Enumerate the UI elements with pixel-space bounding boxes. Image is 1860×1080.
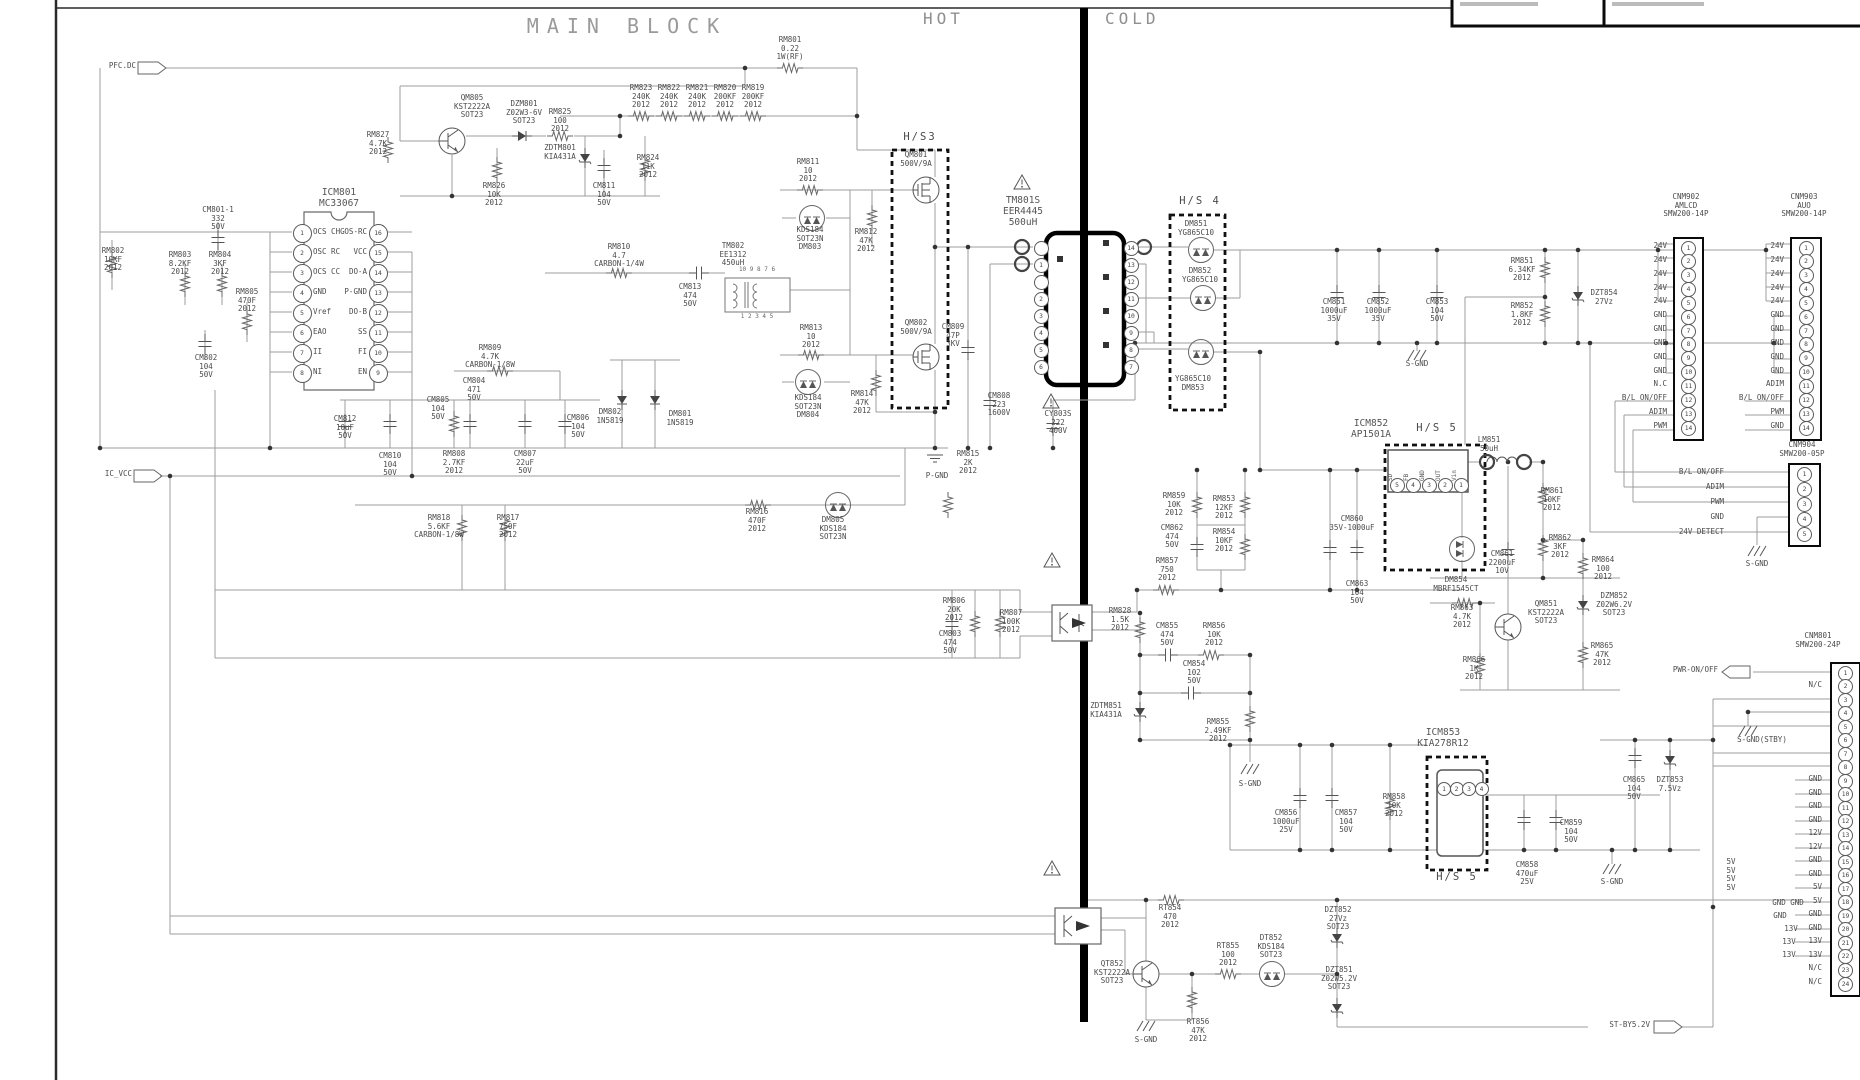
ground-label: S-GND [1239, 780, 1262, 789]
component-label: DZT854 27Vz [1590, 289, 1617, 306]
cnm902-pin-label: N.C [1653, 380, 1667, 389]
cnm801-pin-label: 13V [1808, 937, 1822, 946]
icm801-pin-fn: Vref [313, 308, 331, 317]
icm801-pin-fn: DO-A [349, 268, 367, 277]
component-label: RM810 4.7 CARBON-1/4W [594, 243, 644, 269]
component-label: RM856 10K 2012 [1203, 622, 1226, 648]
cnm903-pin-label: GND [1770, 339, 1784, 348]
icm801-pin-fn: DO-B [349, 308, 367, 317]
heatsink-hs3-box [892, 150, 948, 408]
cnm903-pin-14: 14 [1799, 421, 1814, 436]
cnm904-pin-4: 4 [1797, 512, 1812, 527]
component-label: RM807 100K 2012 [1000, 609, 1023, 635]
icm801-pin-3: 3 [293, 264, 312, 283]
component-label: CM805 104 50V [427, 396, 450, 422]
icm801-pin-fn: OCS CC [313, 268, 340, 277]
component-label: RM816 470F 2012 [746, 508, 769, 534]
cnm902-pin-label: GND [1653, 353, 1667, 362]
cnm801-pin-label: GND [1808, 789, 1822, 798]
cnm904-pin-3: 3 [1797, 497, 1812, 512]
component-label: CM856 1000uF 25V [1272, 809, 1299, 835]
component-label: RT854 470 2012 [1159, 904, 1182, 930]
component-label: RM820 200KF 2012 [714, 84, 737, 110]
component-label: RM808 2.7KF 2012 [443, 450, 466, 476]
cnm903-pin-5: 5 [1799, 296, 1814, 311]
component-label: CM812 10uF 50V [334, 415, 357, 441]
component-label: RM813 10 2012 [800, 324, 823, 350]
cnm903-pin-label: GND [1770, 325, 1784, 334]
cnm903-pin-label: 24V [1770, 242, 1784, 251]
component-label: ZDTM851 KIA431A [1090, 702, 1122, 719]
tm801s-primary-pin [1034, 275, 1049, 290]
component-label: DM854 MBRF1545CT [1433, 576, 1478, 593]
cnm903-pin-10: 10 [1799, 365, 1814, 380]
component-label: RM827 4.7K 2012 [367, 131, 390, 157]
icm801-pin-12: 12 [369, 304, 388, 323]
icm801-pin-16: 16 [369, 224, 388, 243]
cnm801-pin-label: 5V [1813, 883, 1822, 892]
cnm801-pin-label: GND [1808, 856, 1822, 865]
component-label: RM804 3KF 2012 [209, 251, 232, 277]
cnm902-pin-label: B/L ON/OFF [1622, 394, 1667, 403]
cnm903-pin-1: 1 [1799, 241, 1814, 256]
cnm801-pin-label: GND [1808, 870, 1822, 879]
cnm902-pin-7: 7 [1681, 324, 1696, 339]
component-label: QM805 KST2222A SOT23 [454, 94, 490, 120]
icm801-pin-fn: SS [358, 328, 367, 337]
component-label: CM804 471 50V [463, 377, 486, 403]
heatsink-label: H/S 5 [1436, 872, 1478, 884]
cnm801-pin-label: 13V [1808, 951, 1822, 960]
component-label: RT856 47K 2012 [1187, 1018, 1210, 1044]
cnm903-pin-label: GND [1770, 367, 1784, 376]
icm801-pin-13: 13 [369, 284, 388, 303]
component-label: RM818 5.6KF CARBON-1/8W [414, 514, 464, 540]
cnm801-pin-label: GND [1808, 802, 1822, 811]
tm802-top-pins: 10 9 8 7 6 [739, 267, 775, 274]
cnm903-pin-13: 13 [1799, 407, 1814, 422]
cnm902-pin-label: 24V [1653, 242, 1667, 251]
component-label: RM801 0.22 1W(RF) [776, 36, 803, 62]
icm801-body [304, 212, 374, 390]
component-label: RM802 10KF 2012 [102, 247, 125, 273]
cnm904-pin-2: 2 [1797, 482, 1812, 497]
icm853-title: ICM853 KIA278R12 [1417, 728, 1468, 750]
component-label: CM852 1000uF 35V [1364, 298, 1391, 324]
component-label: DT852 KDS184 SOT23 [1257, 934, 1284, 960]
cnm902-pin-label: 24V [1653, 256, 1667, 265]
heatsink-label: H/S3 [903, 132, 936, 144]
cnm902-pin-label: GND [1653, 339, 1667, 348]
cnm903-pin-label: GND [1770, 422, 1784, 431]
icm801-pin-10: 10 [369, 344, 388, 363]
tm801s-secondary-pin: 12 [1124, 275, 1139, 290]
component-label: RM862 3KF 2012 [1549, 534, 1572, 560]
component-label: RM866 1K 2012 [1463, 656, 1486, 682]
cnm904-pin-label: 24V DETECT [1679, 528, 1724, 537]
pwr-on-off-label: PWR-ON/OFF [1673, 666, 1718, 675]
cnm904-pin-1: 1 [1797, 467, 1812, 482]
icm801-pin-2: 2 [293, 244, 312, 263]
component-label: QT852 KST2222A SOT23 [1094, 960, 1130, 986]
component-label: CM857 104 50V [1335, 809, 1358, 835]
cnm801-pin-24: 24 [1838, 977, 1853, 992]
component-label: DM852 YG865C10 [1182, 267, 1218, 284]
tm801s-secondary-pin: 7 [1124, 360, 1139, 375]
component-label: RM821 240K 2012 [686, 84, 709, 110]
component-label: CM855 474 50V [1156, 622, 1179, 648]
icm801-pin-fn: OCS CHG [313, 228, 345, 237]
component-label: QM802 500V/9A [900, 319, 932, 336]
cnm903-pin-label: B/L ON/OFF [1739, 394, 1784, 403]
component-label: CM803 474 50V [939, 630, 962, 656]
component-label: ZDTM801 KIA431A [544, 144, 576, 161]
schematic-page: MAIN BLOCK HOT COLD RM801 0.22 1W(RF)RM8… [0, 0, 1860, 1080]
icm801-title: ICM801 MC33067 [319, 188, 359, 210]
component-label: CM802 104 50V [195, 354, 218, 380]
component-label: RM853 12KF 2012 [1213, 495, 1236, 521]
cnm903-pin-9: 9 [1799, 351, 1814, 366]
icm801-pin-fn: FI [358, 348, 367, 357]
component-label: CM860 35V-1000uF [1329, 515, 1374, 532]
component-label: RM861 10KF 2012 [1541, 487, 1564, 513]
component-label: RM855 2.49KF 2012 [1204, 718, 1231, 744]
component-label: DM851 YG865C10 [1178, 220, 1214, 237]
icm801-pin-fn: EN [358, 368, 367, 377]
connector-title: CNM902 AMLCD SMW200-14P [1663, 193, 1708, 219]
icm801-pin-fn: OSC RC [313, 248, 340, 257]
cnm801-pin-label: 12V [1808, 843, 1822, 852]
icm852-pin-name: SD [1387, 474, 1394, 481]
component-label: KDS184 SOT23N DM804 [794, 394, 821, 420]
cnm903-pin-12: 12 [1799, 393, 1814, 408]
component-label: CM807 22uF 50V [514, 450, 537, 476]
cnm902-pin-label: PWM [1653, 422, 1667, 431]
component-label: DM805 KDS184 SOT23N [819, 516, 846, 542]
tm801s-primary-pin: 3 [1034, 309, 1049, 324]
tm801s-primary-pin: 5 [1034, 343, 1049, 358]
cnm902-pin-13: 13 [1681, 407, 1696, 422]
st-by-5-2v-label: ST-BY5.2V [1609, 1021, 1650, 1030]
component-label: CM806 104 50V [567, 414, 590, 440]
icm801-pin-fn: NI [313, 368, 322, 377]
component-label: RM852 1.8KF 2012 [1511, 302, 1534, 328]
icm801-pin-fn: P-GND [344, 288, 367, 297]
component-label: RM811 10 2012 [797, 158, 820, 184]
cnm902-pin-12: 12 [1681, 393, 1696, 408]
component-label: RM803 8.2KF 2012 [169, 251, 192, 277]
cnm904-pin-label: GND [1710, 513, 1724, 522]
component-label: RM864 100 2012 [1592, 556, 1615, 582]
cnm902-pin-label: ADIM [1649, 408, 1667, 417]
icm801-pin-4: 4 [293, 284, 312, 303]
component-label: RM815 2K 2012 [957, 450, 980, 476]
pfc-dc-label: PFC.DC [109, 62, 136, 71]
cnm902-pin-4: 4 [1681, 282, 1696, 297]
component-label: CM810 104 50V [379, 452, 402, 478]
tm801s-primary-pin: 2 [1034, 292, 1049, 307]
icm801-pin-7: 7 [293, 344, 312, 363]
cnm902-pin-14: 14 [1681, 421, 1696, 436]
cnm902-pin-5: 5 [1681, 296, 1696, 311]
tm801s-secondary-pin: 14 [1124, 241, 1139, 256]
frame [56, 0, 1860, 1080]
icm852-title: ICM852 AP1501A [1351, 419, 1391, 441]
cnm801-pin-4: 4 [1838, 706, 1853, 721]
icm801-pin-11: 11 [369, 324, 388, 343]
cnm903-pin-label: GND [1770, 311, 1784, 320]
ground-label: S-GND [1746, 560, 1769, 569]
cnm904-pin-label: B/L ON/OFF [1679, 468, 1724, 477]
cnm801-pin-label: N/C [1808, 978, 1822, 987]
tm801s-secondary-pin: 11 [1124, 292, 1139, 307]
component-label: 13V [1782, 951, 1796, 960]
component-label: 5V 5V 5V 5V [1726, 858, 1735, 892]
ground-label: S-GND(STBY) [1737, 736, 1787, 745]
ground-label: S-GND [1601, 878, 1624, 887]
connector-title: CNM903 AUO SMW200-14P [1781, 193, 1826, 219]
tm801s-secondary-pin: 8 [1124, 343, 1139, 358]
cnm801-pin-6: 6 [1838, 733, 1853, 748]
main-block-title: MAIN BLOCK [527, 14, 727, 38]
icm852-pin-name: GND [1419, 470, 1426, 481]
cnm801-pin-label: 12V [1808, 829, 1822, 838]
component-label: DZM852 Z02W6.2V SOT23 [1596, 592, 1632, 618]
cnm902-pin-label: GND [1653, 311, 1667, 320]
component-label: CM808 223 1600V [988, 392, 1011, 418]
tm801s-primary-pin: 4 [1034, 326, 1049, 341]
isolation-barrier [1080, 8, 1088, 1022]
component-label: RM826 10K 2012 [483, 182, 506, 208]
component-label: RM854 10KF 2012 [1213, 528, 1236, 554]
cnm801-pin-label: GND [1808, 816, 1822, 825]
cnm904-pin-label: ADIM [1706, 483, 1724, 492]
hot-label: HOT [923, 9, 964, 28]
component-label: DZM801 Z02W3-6V SOT23 [506, 100, 542, 126]
tm801s-secondary-pin: 9 [1124, 326, 1139, 341]
cnm902-pin-label: 24V [1653, 270, 1667, 279]
component-label: RM851 6.34KF 2012 [1508, 257, 1535, 283]
icm853-pin-4: 4 [1475, 782, 1489, 796]
cnm801-pin-label: GND [1808, 910, 1822, 919]
component-label: CM813 474 50V [679, 283, 702, 309]
component-label: CM863 104 50V [1346, 580, 1369, 606]
component-label: RM824 11K 2012 [637, 154, 660, 180]
cnm903-pin-label: 24V [1770, 256, 1784, 265]
cnm903-pin-3: 3 [1799, 268, 1814, 283]
cnm801-pin-label: 5V [1813, 897, 1822, 906]
icm801-pin-fn: OS-RC [344, 228, 367, 237]
icm801-pin-14: 14 [369, 264, 388, 283]
component-label: RM812 47K 2012 [855, 228, 878, 254]
component-label: QM851 KST2222A SOT23 [1528, 600, 1564, 626]
component-label: RM863 4.7K 2012 [1451, 604, 1474, 630]
component-label: DM802 1N5819 [596, 408, 623, 425]
ic-vcc-arrow [134, 470, 162, 482]
cnm801-pin-label: N/C [1808, 964, 1822, 973]
cnm903-pin-label: PWM [1770, 408, 1784, 417]
cnm801-pin-label: GND [1808, 775, 1822, 784]
cnm902-pin-label: 24V [1653, 297, 1667, 306]
ground-label: S-GND [1406, 360, 1429, 369]
ground-label: P-GND [926, 472, 949, 481]
cnm904-pin-5: 5 [1797, 527, 1812, 542]
component-label: DZT851 Z02W5.2V SOT23 [1321, 966, 1357, 992]
icm801-pin-fn: EAO [313, 328, 327, 337]
cnm903-pin-6: 6 [1799, 310, 1814, 325]
cnm903-pin-11: 11 [1799, 379, 1814, 394]
component-label: 13V [1784, 925, 1798, 934]
pwr-on-off-arrow [1722, 666, 1750, 678]
component-label: CM862 474 50V [1161, 524, 1184, 550]
icm801-pin-fn: GND [313, 288, 327, 297]
ground-label: S-GND [1135, 1036, 1158, 1045]
icm852-pin-name: OUT [1435, 470, 1442, 481]
cnm902-pin-label: GND [1653, 325, 1667, 334]
component-label: YG865C10 DM853 [1175, 375, 1211, 392]
component-label: RM817 750F 2012 [497, 514, 520, 540]
component-label: LM851 50uH [1478, 436, 1501, 453]
heatsink-label: H/S 5 [1416, 423, 1458, 435]
cnm903-pin-label: 24V [1770, 297, 1784, 306]
component-label: RM857 750 2012 [1156, 557, 1179, 583]
icm852-pin-name: Vin [1451, 470, 1458, 481]
connector-title: CNM801 SMW200-24P [1795, 632, 1840, 649]
component-label: RT855 100 2012 [1217, 942, 1240, 968]
component-label: RM819 200KF 2012 [742, 84, 765, 110]
pfc-dc-arrow [138, 62, 166, 74]
icm801-pin-1: 1 [293, 224, 312, 243]
heatsink-label: H/S 4 [1179, 196, 1221, 208]
cnm902-pin-label: 24V [1653, 284, 1667, 293]
component-label: CM859 104 50V [1560, 819, 1583, 845]
component-label: CM858 470uF 25V [1516, 861, 1539, 887]
component-label: CM865 104 50V [1623, 776, 1646, 802]
cnm801-pin-2: 2 [1838, 679, 1853, 694]
component-label: CM853 104 50V [1426, 298, 1449, 324]
icm853-pin-1: 1 [1437, 782, 1451, 796]
cnm902-pin-1: 1 [1681, 241, 1696, 256]
connector-title: CNM904 SMW200-05P [1779, 441, 1824, 458]
icm852-pin-name: FB [1403, 474, 1410, 481]
component-label: RM805 470F 2012 [236, 288, 259, 314]
cnm801-pin-label: GND [1808, 924, 1822, 933]
cnm903-pin-label: 24V [1770, 270, 1784, 279]
icm801-pin-9: 9 [369, 364, 388, 383]
component-label: RM858 10K 2012 [1383, 793, 1406, 819]
tm801s-primary-pin: 1 [1034, 258, 1049, 273]
component-label: GND GND [1772, 899, 1804, 908]
component-label: RM809 4.7K CARBON-1/8W [465, 344, 515, 370]
tm802-title: TM802 EE1312 450uH [719, 242, 746, 268]
component-label: CM801-1 332 50V [202, 206, 234, 232]
ic-vcc-label: IC_VCC [105, 470, 132, 479]
cnm904-pin-label: PWM [1710, 498, 1724, 507]
component-label: DZT852 27Vz SOT23 [1324, 906, 1351, 932]
component-label: CY803S 222 400V [1044, 410, 1071, 436]
tm802-body [725, 278, 790, 312]
component-label: CM854 102 50V [1183, 660, 1206, 686]
component-label: CM809 47P 3KV [942, 323, 965, 349]
component-label: 13V [1782, 938, 1796, 947]
component-label: RM865 47K 2012 [1591, 642, 1614, 668]
component-label: RM825 100 2012 [549, 108, 572, 134]
component-label: RM828 1.5K 2012 [1109, 607, 1132, 633]
cnm903-pin-4: 4 [1799, 282, 1814, 297]
cnm801-pin-label: N/C [1808, 681, 1822, 690]
tm801s-secondary-pin: 13 [1124, 258, 1139, 273]
icm801-pin-8: 8 [293, 364, 312, 383]
component-label: CM861 2200uF 10V [1488, 550, 1515, 576]
icm801-pin-fn: VCC [353, 248, 367, 257]
tm801s-title: TM801S EER4445 500uH [1003, 196, 1043, 228]
icm853-pin-3: 3 [1462, 782, 1476, 796]
icm801-pin-5: 5 [293, 304, 312, 323]
cnm903-pin-label: 24V [1770, 284, 1784, 293]
cnm903-pin-label: GND [1770, 353, 1784, 362]
cnm903-pin-8: 8 [1799, 337, 1814, 352]
st-by-arrow [1654, 1021, 1682, 1033]
tm801s-primary-pin: 6 [1034, 360, 1049, 375]
component-label: RM859 10K 2012 [1163, 492, 1186, 518]
cnm902-pin-6: 6 [1681, 310, 1696, 325]
tm801s-primary-pin [1034, 241, 1049, 256]
cold-label: COLD [1105, 9, 1160, 28]
cnm902-pin-label: GND [1653, 367, 1667, 376]
tm802-bottom-pins: 1 2 3 4 5 [741, 314, 774, 321]
cnm903-pin-2: 2 [1799, 254, 1814, 269]
component-label: QM801 500V/9A [900, 151, 932, 168]
cnm903-pin-label: ADIM [1766, 380, 1784, 389]
component-label: RM823 240K 2012 [630, 84, 653, 110]
icm801-pin-6: 6 [293, 324, 312, 343]
component-label: CM851 1000uF 35V [1320, 298, 1347, 324]
component-label: RM806 20K 2012 [943, 597, 966, 623]
component-label: RM814 47K 2012 [851, 390, 874, 416]
tm801s-secondary-pin: 10 [1124, 309, 1139, 324]
component-label: RM822 240K 2012 [658, 84, 681, 110]
cnm902-pin-11: 11 [1681, 379, 1696, 394]
component-label: DZT853 7.5Vz [1656, 776, 1683, 793]
icm801-pin-15: 15 [369, 244, 388, 263]
component-label: KDS184 SOT23N DM803 [796, 226, 823, 252]
cnm903-pin-7: 7 [1799, 324, 1814, 339]
component-label: GND [1773, 912, 1787, 921]
icm801-pin-fn: II [313, 348, 322, 357]
cnm801-pin-23: 23 [1838, 963, 1853, 978]
component-label: DM801 1N5819 [666, 410, 693, 427]
component-label: CM811 104 50V [593, 182, 616, 208]
